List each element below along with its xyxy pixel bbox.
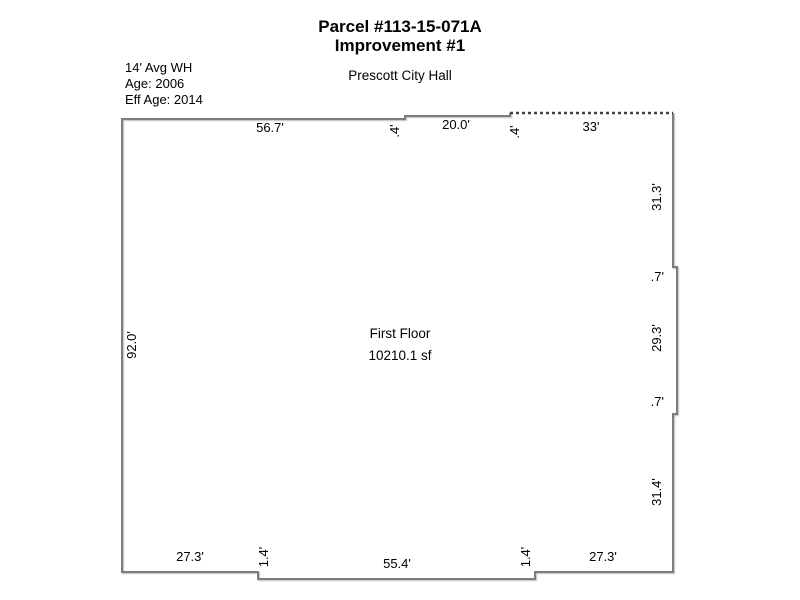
dim-bottom-right-27-3: 27.3' — [589, 549, 617, 564]
info-eff-age: Eff Age: 2014 — [125, 92, 203, 107]
dim-top-jog-right: .4' — [507, 125, 522, 138]
improvement-title: Improvement #1 — [335, 36, 465, 55]
dim-left-92-0: 92.0' — [124, 331, 139, 359]
dim-bottom-left-27-3: 27.3' — [176, 549, 204, 564]
dim-top-20-0: 20.0' — [442, 117, 470, 132]
dim-top-jog-left: .4' — [387, 124, 402, 137]
dim-bottom-jog-left: 1.4' — [256, 547, 271, 568]
dim-right-jog-upper: .7' — [651, 269, 664, 284]
building-outline — [122, 113, 677, 579]
dim-bottom-jog-right: 1.4' — [518, 547, 533, 568]
info-age: Age: 2006 — [125, 76, 184, 91]
sketch-page: Parcel #113-15-071A Improvement #1 Presc… — [0, 0, 800, 600]
parcel-title: Parcel #113-15-071A — [318, 17, 482, 36]
dim-right-31-3: 31.3' — [649, 183, 664, 211]
floor-area: 10210.1 sf — [368, 348, 431, 363]
dim-bottom-55-4: 55.4' — [383, 556, 411, 571]
info-wall-height: 14' Avg WH — [125, 60, 192, 75]
dim-top-56-7: 56.7' — [256, 120, 284, 135]
floor-name: First Floor — [370, 326, 431, 341]
dim-right-29-3: 29.3' — [649, 324, 664, 352]
sketch-canvas: Parcel #113-15-071A Improvement #1 Presc… — [0, 0, 800, 600]
dim-top-33: 33' — [583, 119, 600, 134]
dim-right-jog-lower: .7' — [651, 394, 664, 409]
building-name: Prescott City Hall — [348, 68, 452, 83]
dim-right-31-4: 31.4' — [649, 478, 664, 506]
